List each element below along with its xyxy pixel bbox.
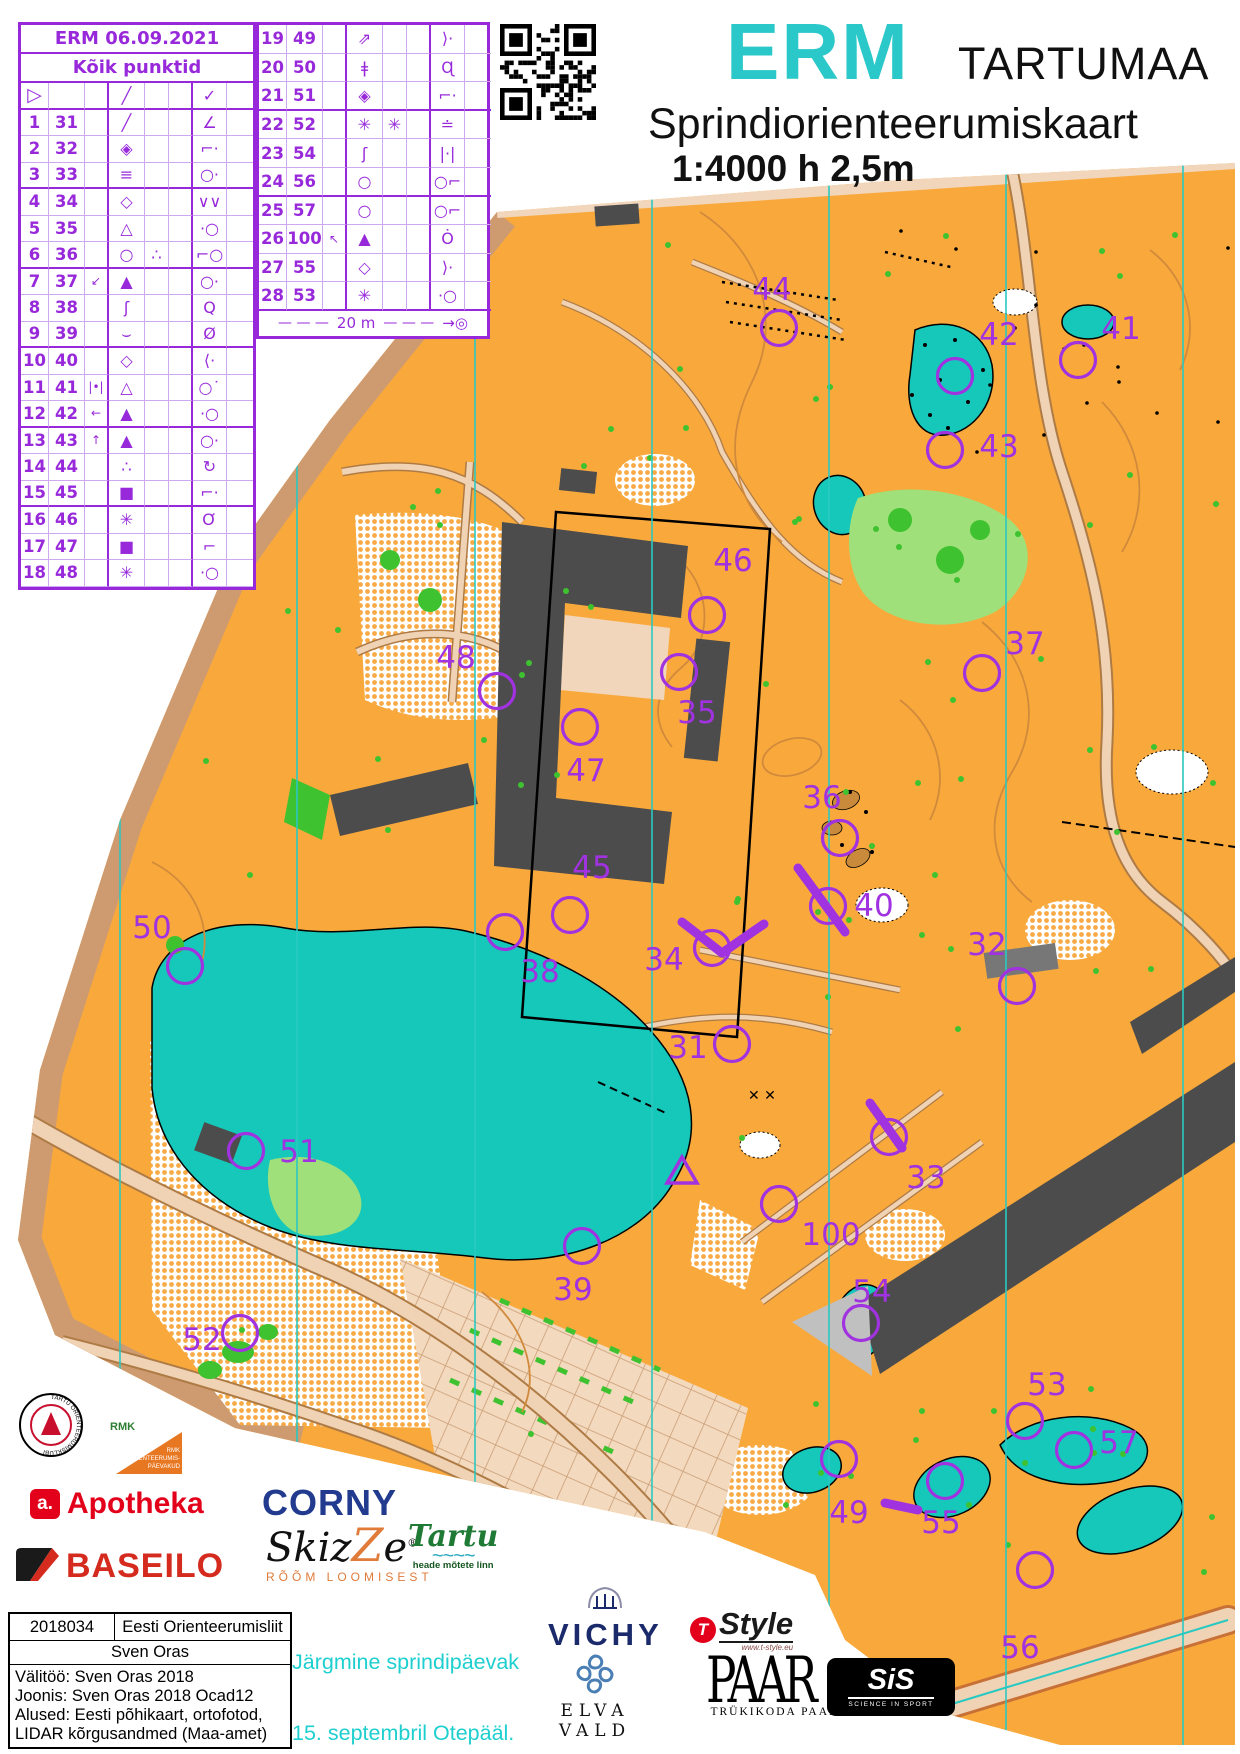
elva-text: ELVA VALD — [540, 1701, 650, 1741]
desc-cell: |•| — [85, 375, 109, 402]
qr-module — [546, 51, 551, 56]
sis-tagline: SCIENCE IN SPORT — [848, 1701, 933, 1708]
qr-module — [546, 83, 551, 88]
desc-cell: ⌐· — [193, 481, 227, 508]
desc-cell — [169, 242, 193, 269]
qr-module — [559, 83, 564, 88]
desc-row: 2354ʃ|·| — [259, 139, 487, 168]
baseilo-flag-icon — [14, 1545, 60, 1587]
vichy-logo: VICHY — [548, 1582, 663, 1653]
desc-cell: 38 — [49, 295, 85, 322]
qr-module — [559, 74, 564, 79]
desc-cell: ·○ — [193, 401, 227, 428]
desc-cell — [85, 322, 109, 349]
desc-cell: 53 — [287, 282, 323, 311]
desc-cell — [85, 83, 109, 110]
desc-cell — [383, 168, 407, 197]
desc-cell: 12 — [21, 401, 49, 428]
dash-left: — — — — [278, 315, 329, 331]
announcement-line: Järgmine sprindipäevak — [292, 1651, 531, 1675]
desc-cell: 6 — [21, 242, 49, 269]
tree-dot — [966, 1502, 972, 1508]
desc-cell: 14 — [21, 454, 49, 481]
qr-module — [505, 70, 510, 75]
desc-cell — [169, 295, 193, 322]
baseilo-text: BASEILO — [66, 1547, 224, 1586]
desc-cell: ○· — [193, 428, 227, 455]
qr-module — [550, 29, 555, 34]
desc-cell: Ȯ — [431, 225, 465, 254]
apotheka-text: Apotheka — [67, 1487, 204, 1521]
desc-cell — [169, 507, 193, 534]
desc-cell — [145, 348, 169, 375]
tree-dot — [554, 772, 560, 778]
qr-module — [514, 74, 519, 79]
tree-dot — [873, 526, 879, 532]
desc-cell: 33 — [49, 163, 85, 190]
control-number: 47 — [566, 753, 605, 789]
qr-module — [518, 74, 523, 79]
desc-cell: 17 — [21, 534, 49, 561]
tree-dot — [1151, 744, 1157, 750]
desc-cell: △ — [109, 216, 145, 243]
elva-vald-logo: ELVA VALD — [540, 1652, 650, 1741]
desc-cell: 39 — [49, 322, 85, 349]
desc-row: 1444∴↻ — [21, 454, 253, 481]
control-number: 56 — [1000, 1630, 1039, 1666]
desc-cell: ○· — [193, 163, 227, 190]
tree-dot — [843, 789, 849, 795]
qr-module — [550, 70, 555, 75]
map-scale: 1:4000 h 2,5m — [672, 148, 915, 190]
desc-cell — [407, 282, 431, 311]
qr-module — [555, 102, 560, 107]
desc-row: 1141|•|△○˙ — [21, 375, 253, 402]
qr-module — [564, 61, 569, 66]
tree-dot — [913, 1437, 919, 1443]
map-author: Sven Oras — [10, 1641, 290, 1665]
desc-cell — [227, 269, 253, 296]
tree-dot — [1090, 1426, 1096, 1432]
qr-module — [578, 88, 583, 93]
desc-cell — [465, 254, 491, 283]
desc-cell — [323, 254, 347, 283]
desc-cell — [145, 428, 169, 455]
vichy-pavilion-icon — [583, 1582, 627, 1612]
qr-module — [564, 115, 569, 120]
qr-module — [569, 61, 574, 66]
desc-cell: 40 — [49, 348, 85, 375]
desc-cell: ╱ — [109, 83, 145, 110]
tree-dot — [869, 843, 875, 849]
desc-cell: ≐ — [431, 111, 465, 140]
tree-dot — [528, 1431, 534, 1437]
qr-module — [591, 111, 596, 116]
tree-dot — [915, 780, 921, 786]
desc-cell — [85, 216, 109, 243]
qr-module — [582, 111, 587, 116]
qr-module — [578, 115, 583, 120]
tree-dot — [335, 627, 341, 633]
desc-title: ERM 06.09.2021 — [21, 25, 253, 54]
desc-cell: 27 — [259, 254, 287, 283]
tree-dot — [1213, 501, 1219, 507]
qr-module — [564, 93, 569, 98]
tree-dot — [796, 516, 802, 522]
desc-cell — [145, 163, 169, 190]
desc-cell — [145, 269, 169, 296]
qr-module — [559, 79, 564, 84]
desc-cell: ∠ — [193, 110, 227, 137]
qr-module — [537, 83, 542, 88]
qr-module — [527, 61, 532, 66]
qr-module — [555, 47, 560, 52]
qr-module — [587, 115, 592, 120]
desc-cell: 8 — [21, 295, 49, 322]
qr-module — [555, 83, 560, 88]
desc-cell: 49 — [287, 25, 323, 54]
desc-cell — [85, 507, 109, 534]
stone-dot — [1226, 246, 1230, 250]
tree-dot — [958, 776, 964, 782]
control-number: 33 — [906, 1160, 945, 1196]
qr-module — [541, 88, 546, 93]
desc-cell: 11 — [21, 375, 49, 402]
qr-module — [591, 115, 596, 120]
tree-dot — [739, 1135, 745, 1141]
desc-cell: ○ — [109, 242, 145, 269]
desc-cell: Ơ — [193, 507, 227, 534]
desc-cell: ⟨· — [193, 348, 227, 375]
tartu-city-tagline: heade mõtete linn — [408, 1560, 498, 1571]
qr-module — [582, 88, 587, 93]
tree-dot — [943, 233, 949, 239]
desc-cell — [407, 225, 431, 254]
desc-cell: Ø — [193, 322, 227, 349]
desc-cell — [383, 197, 407, 226]
tree-dot — [735, 896, 741, 902]
tree-dot — [1114, 829, 1120, 835]
qr-module — [569, 93, 574, 98]
desc-cell — [407, 254, 431, 283]
qr-module — [555, 29, 560, 34]
control-number: 45 — [572, 850, 611, 886]
tree-dot — [932, 872, 938, 878]
desc-cell — [169, 428, 193, 455]
desc-cell: 52 — [287, 111, 323, 140]
desc-row: 1343↑▲○· — [21, 428, 253, 455]
desc-cell: ↙ — [85, 269, 109, 296]
stone-dot — [1034, 250, 1038, 254]
qr-finder — [509, 33, 523, 47]
desc-cell — [383, 25, 407, 54]
desc-cell: ← — [85, 401, 109, 428]
desc-cell — [227, 348, 253, 375]
desc-cell — [169, 534, 193, 561]
desc-cell — [145, 136, 169, 163]
rough-open-patch — [615, 454, 695, 506]
desc-row: 1646✳Ơ — [21, 507, 253, 534]
desc-cell: 26 — [259, 225, 287, 254]
map-type: Sprindiorienteerumiskaart — [648, 100, 1138, 149]
tree-dot — [925, 659, 931, 665]
tree-dot — [519, 672, 525, 678]
qr-module — [587, 70, 592, 75]
desc-cell: ✳ — [383, 111, 407, 140]
desc-cell: 3 — [21, 163, 49, 190]
qr-module — [537, 33, 542, 38]
qr-module — [509, 74, 514, 79]
finish-funnel-icon: →◎ — [442, 314, 468, 332]
tree-dot — [885, 271, 891, 277]
desc-cell: ʃ — [347, 139, 383, 168]
tree-dot — [581, 463, 587, 469]
qr-module — [541, 83, 546, 88]
credit-line: Joonis: Sven Oras 2018 Ocad12 — [15, 1687, 285, 1706]
tree-dot — [1209, 1514, 1215, 1520]
qr-module — [569, 83, 574, 88]
desc-cell: 7 — [21, 269, 49, 296]
desc-cell: 19 — [259, 25, 287, 54]
skizze-tagline: RÕÕM LOOMISEST — [266, 1570, 433, 1584]
tree-dot — [1117, 273, 1123, 279]
tree-dot — [954, 577, 960, 583]
qr-module — [591, 65, 596, 70]
qr-module — [564, 74, 569, 79]
desc-cell — [407, 139, 431, 168]
tree-dot — [563, 588, 569, 594]
qr-module — [559, 65, 564, 70]
desc-cell — [169, 269, 193, 296]
desc-cell — [145, 216, 169, 243]
desc-row: 131╱∠ — [21, 110, 253, 137]
desc-cell — [407, 197, 431, 226]
qr-module — [587, 79, 592, 84]
desc-cell — [323, 111, 347, 140]
stone-dot — [1155, 411, 1159, 415]
tree-dot — [526, 660, 532, 666]
desc-cell: 32 — [49, 136, 85, 163]
trykikoda-glyph: PAAR — [706, 1648, 813, 1712]
desc-cell — [85, 136, 109, 163]
desc-cell — [85, 534, 109, 561]
desc-cell — [145, 375, 169, 402]
control-number: 57 — [1099, 1425, 1138, 1461]
desc-cell — [407, 25, 431, 54]
control-number: 49 — [829, 1495, 868, 1531]
tree-dot — [410, 504, 416, 510]
tree-dot — [683, 425, 689, 431]
desc-cell — [323, 282, 347, 311]
stone-dot — [1085, 401, 1089, 405]
desc-cell — [383, 254, 407, 283]
desc-row: 838ʃQ — [21, 295, 253, 322]
desc-cell — [145, 83, 169, 110]
svg-text:PÄEVAKUD: PÄEVAKUD — [148, 1463, 181, 1470]
tree-dot — [247, 872, 253, 878]
desc-cell — [145, 507, 169, 534]
tree-dot — [955, 1026, 961, 1032]
desc-cell: ↖ — [323, 225, 347, 254]
desc-table-2: 1949⇗⟩·2050ǂɊ2151◈⌐·2252✳✳≐2354ʃ|·|2456○… — [259, 25, 487, 311]
qr-module — [569, 115, 574, 120]
desc-cell — [227, 507, 253, 534]
control-number: 55 — [921, 1505, 960, 1541]
qr-module — [569, 65, 574, 70]
desc-cell — [227, 375, 253, 402]
qr-module — [550, 56, 555, 61]
announcement-line: 15. septembril Otepääl. — [292, 1722, 531, 1746]
desc-row: 737↙▲○· — [21, 269, 253, 296]
tstyle-t-icon: T — [690, 1617, 716, 1643]
tree-dot — [1022, 1460, 1028, 1466]
desc-cell: |·| — [431, 139, 465, 168]
desc-cell — [383, 54, 407, 83]
desc-cell: ǂ — [347, 54, 383, 83]
desc-cell: 56 — [287, 168, 323, 197]
map-number: 2018034 — [10, 1614, 115, 1640]
desc-cell: 1 — [21, 110, 49, 137]
tree-dot — [818, 1470, 824, 1476]
desc-cell: ◇ — [109, 348, 145, 375]
desc-cell — [465, 111, 491, 140]
desc-cell — [407, 54, 431, 83]
desc-cell: ◈ — [109, 136, 145, 163]
desc-cell — [145, 534, 169, 561]
tree-dot — [269, 1469, 275, 1475]
desc-cell: ∨∨ — [193, 189, 227, 216]
desc-cell: 37 — [49, 269, 85, 296]
tartu-city-logo: Tartu ~~~~ heade mõtete linn — [408, 1522, 498, 1571]
desc-row: 2557○○⌐ — [259, 197, 487, 226]
desc-cell: 50 — [287, 54, 323, 83]
qr-module — [569, 106, 574, 111]
desc-cell — [85, 348, 109, 375]
tree-dot — [481, 737, 487, 743]
qr-module — [582, 74, 587, 79]
desc-row: 2050ǂɊ — [259, 54, 487, 83]
tree-dot — [815, 909, 821, 915]
qr-module — [509, 61, 514, 66]
desc-row: 2252✳✳≐ — [259, 111, 487, 140]
svg-text:✕ ✕: ✕ ✕ — [748, 1088, 776, 1104]
desc-cell: ∴ — [109, 454, 145, 481]
control-number: 50 — [132, 910, 171, 946]
desc-cell: ▲ — [109, 269, 145, 296]
qr-module — [555, 24, 560, 29]
qr-module — [532, 61, 537, 66]
desc-cell — [169, 322, 193, 349]
desc-cell: 48 — [49, 560, 85, 587]
qr-module — [573, 115, 578, 120]
tree-dot — [813, 1401, 819, 1407]
qr-module — [541, 51, 546, 56]
tree-dot — [1172, 232, 1178, 238]
desc-cell — [145, 322, 169, 349]
desc-cell — [465, 282, 491, 311]
qr-module — [559, 88, 564, 93]
qr-module — [591, 83, 596, 88]
desc-row: 232◈⌐· — [21, 136, 253, 163]
desc-cell — [465, 168, 491, 197]
qr-module — [500, 65, 505, 70]
desc-cell: ✳ — [109, 507, 145, 534]
desc-cell: 5 — [21, 216, 49, 243]
tree-dot — [437, 522, 443, 528]
desc-cell: ≡ — [109, 163, 145, 190]
desc-cell: ↻ — [193, 454, 227, 481]
qr-module — [587, 88, 592, 93]
desc-cell: 31 — [49, 110, 85, 137]
qr-module — [537, 47, 542, 52]
control-number: 46 — [713, 543, 752, 579]
control-number: 34 — [644, 942, 683, 978]
tree-dot — [991, 1408, 997, 1414]
desc-row: 1040◇⟨· — [21, 348, 253, 375]
stone-dot — [1117, 380, 1121, 384]
qr-module — [546, 65, 551, 70]
control-number: 36 — [802, 780, 841, 816]
desc-row: 1242←▲·○ — [21, 401, 253, 428]
desc-cell: 42 — [49, 401, 85, 428]
qr-module — [541, 38, 546, 43]
desc-cell — [169, 560, 193, 587]
desc-cell: 10 — [21, 348, 49, 375]
tree-dot — [588, 604, 594, 610]
desc-cell — [227, 110, 253, 137]
desc-cell — [227, 295, 253, 322]
desc-cell: ⌐· — [193, 136, 227, 163]
qr-module — [587, 74, 592, 79]
qr-module — [559, 111, 564, 116]
desc-cell: ╱ — [109, 110, 145, 137]
desc-cell: 46 — [49, 507, 85, 534]
control-number: 37 — [1005, 626, 1044, 662]
qr-module — [555, 93, 560, 98]
qr-module — [550, 65, 555, 70]
desc-cell — [383, 139, 407, 168]
desc-cell: ◇ — [347, 254, 383, 283]
map-sheet: ✕ ✕ 444241434637483547364045343250383133… — [0, 0, 1240, 1754]
tree-dot — [285, 608, 291, 614]
stone-dot — [899, 229, 903, 233]
desc-cell: 45 — [49, 481, 85, 508]
desc-cell: ·○ — [193, 216, 227, 243]
desc-cell — [227, 560, 253, 587]
baseilo-logo: BASEILO — [14, 1545, 224, 1587]
desc-cell — [145, 295, 169, 322]
stone-dot — [954, 247, 958, 251]
desc-cell: ✳ — [109, 560, 145, 587]
qr-module — [523, 61, 528, 66]
desc-cell — [227, 322, 253, 349]
desc-cell: 100 — [287, 225, 323, 254]
qr-module — [537, 56, 542, 61]
desc-row: 636○∴⌐○ — [21, 242, 253, 269]
tree-dot — [1087, 522, 1093, 528]
desc-cell — [465, 54, 491, 83]
desc-cell — [85, 295, 109, 322]
tree-dot — [285, 1474, 291, 1480]
qr-module — [546, 74, 551, 79]
tree-dot — [239, 1327, 245, 1333]
desc-cell — [323, 25, 347, 54]
desc-cell — [323, 54, 347, 83]
credits-block: Välitöö: Sven Oras 2018 Joonis: Sven Ora… — [10, 1665, 290, 1747]
qr-module — [578, 106, 583, 111]
desc-cell: 13 — [21, 428, 49, 455]
desc-cell: ∴ — [145, 242, 169, 269]
